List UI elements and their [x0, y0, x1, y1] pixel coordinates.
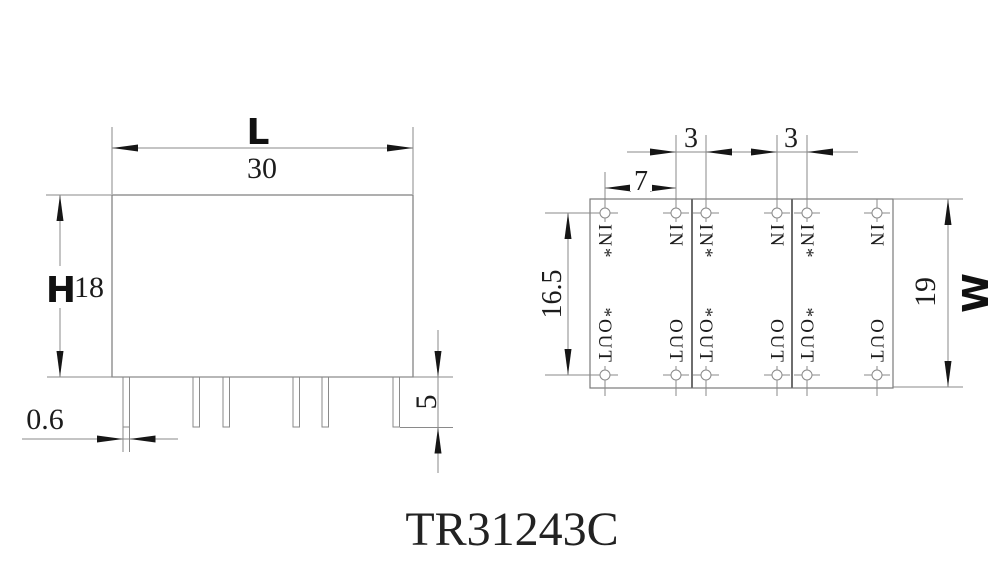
- pad-circle: [671, 208, 681, 218]
- pad-circle: [802, 370, 812, 380]
- arrow-down-icon: [945, 361, 952, 387]
- arrow-left-icon: [130, 436, 156, 443]
- dimension-drawing: L 30 H 18 0.6 5: [0, 0, 1000, 568]
- arrow-left-icon: [706, 149, 732, 156]
- width-letter: W: [956, 273, 997, 313]
- arrow-left-icon: [807, 149, 833, 156]
- top-view: 7 3 3 16.5 19 W: [537, 123, 997, 396]
- dimension-pin-width: 0.6: [22, 403, 178, 452]
- arrow-left-icon: [605, 185, 631, 192]
- pin-3: [223, 377, 230, 427]
- arrow-right-icon: [97, 436, 123, 443]
- pin-label-top-1: IN*: [594, 224, 615, 260]
- pad-circle: [872, 208, 882, 218]
- pin-row-span-value: 16.5: [537, 270, 568, 319]
- top-body-outline: [590, 199, 893, 388]
- pin-4: [293, 377, 300, 427]
- drawing-canvas: L 30 H 18 0.6 5: [0, 0, 1000, 568]
- pin-5: [322, 377, 329, 427]
- height-value: 18: [74, 271, 104, 304]
- dimension-7: 7: [605, 164, 676, 197]
- arrow-down-icon: [565, 349, 572, 375]
- dimension-W: 19 W: [893, 199, 997, 387]
- dimension-pin-length: 5: [400, 330, 453, 473]
- dimension-16-5: 16.5: [537, 213, 572, 375]
- front-view: L 30 H 18 0.6 5: [22, 112, 453, 473]
- pin-labels-in: IN* IN IN* IN IN* IN: [594, 224, 887, 260]
- pin-label-bottom-1: *OUT: [594, 307, 615, 364]
- arrow-down-icon: [57, 351, 64, 377]
- arrow-down-icon: [435, 351, 442, 377]
- dimension-3-3: 3 3: [627, 123, 858, 156]
- pad-row-top: [545, 208, 890, 218]
- pin-length-value: 5: [410, 395, 443, 410]
- length-value: 30: [247, 152, 277, 185]
- pad-circle: [701, 208, 711, 218]
- pad-circle: [872, 370, 882, 380]
- pin-label-top-3: IN*: [695, 224, 716, 260]
- arrow-up-icon: [945, 199, 952, 225]
- pin-label-bottom-3: *OUT: [695, 307, 716, 364]
- pad-row-bottom: [545, 366, 890, 396]
- arrow-right-icon: [650, 185, 676, 192]
- pin-label-top-4: IN: [766, 224, 787, 248]
- pad-circle: [772, 208, 782, 218]
- dimension-L: L 30: [112, 112, 413, 194]
- arrow-right-icon: [387, 145, 413, 152]
- gap-left-value: 3: [684, 123, 698, 154]
- pin-6: [393, 377, 400, 427]
- width-value: 19: [909, 277, 942, 307]
- pad-circle: [701, 370, 711, 380]
- length-letter: L: [247, 112, 270, 153]
- pin-spacing-value: 7: [634, 166, 648, 197]
- pin-label-bottom-6: OUT: [866, 319, 887, 364]
- pin-label-top-2: IN: [665, 224, 686, 248]
- pin-label-bottom-5: *OUT: [796, 307, 817, 364]
- pin-1: [123, 377, 130, 427]
- pin-label-top-6: IN: [866, 224, 887, 248]
- arrow-right-icon: [751, 149, 777, 156]
- gap-right-value: 3: [784, 123, 798, 154]
- arrow-up-icon: [435, 428, 442, 454]
- part-number-title: TR31243C: [405, 503, 618, 556]
- pad-circle: [802, 208, 812, 218]
- pin-2: [193, 377, 200, 427]
- pad-circle: [600, 370, 610, 380]
- arrow-up-icon: [57, 195, 64, 221]
- pin-label-bottom-2: OUT: [665, 319, 686, 364]
- pin-label-top-5: IN*: [796, 224, 817, 260]
- pad-circle: [600, 208, 610, 218]
- height-letter: H: [46, 270, 76, 311]
- arrow-right-icon: [650, 149, 676, 156]
- pad-circle: [671, 370, 681, 380]
- pin-width-value: 0.6: [26, 403, 64, 436]
- pad-circle: [772, 370, 782, 380]
- pin-labels-out: *OUT OUT *OUT OUT *OUT OUT: [594, 307, 887, 364]
- arrow-left-icon: [112, 145, 138, 152]
- pin-label-bottom-4: OUT: [766, 319, 787, 364]
- front-body-outline: [112, 195, 413, 377]
- arrow-up-icon: [565, 213, 572, 239]
- dimension-H: H 18: [46, 195, 106, 377]
